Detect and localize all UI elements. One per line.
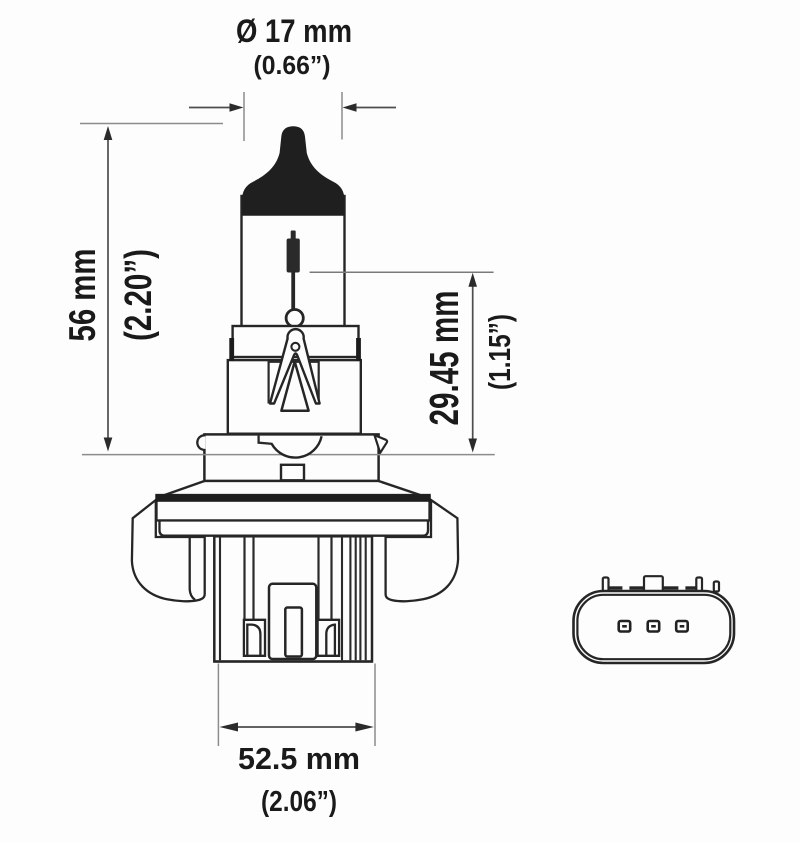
svg-text:(2.06”): (2.06”) [261, 786, 337, 818]
svg-text:52.5 mm: 52.5 mm [238, 741, 360, 776]
svg-text:(0.66”): (0.66”) [254, 50, 331, 80]
svg-text:(1.15”): (1.15”) [482, 314, 517, 390]
svg-text:29.45 mm: 29.45 mm [421, 291, 467, 426]
svg-text:(2.20”): (2.20”) [118, 249, 160, 341]
svg-text:Ø 17 mm: Ø 17 mm [236, 13, 352, 49]
svg-text:56 mm: 56 mm [62, 249, 103, 342]
